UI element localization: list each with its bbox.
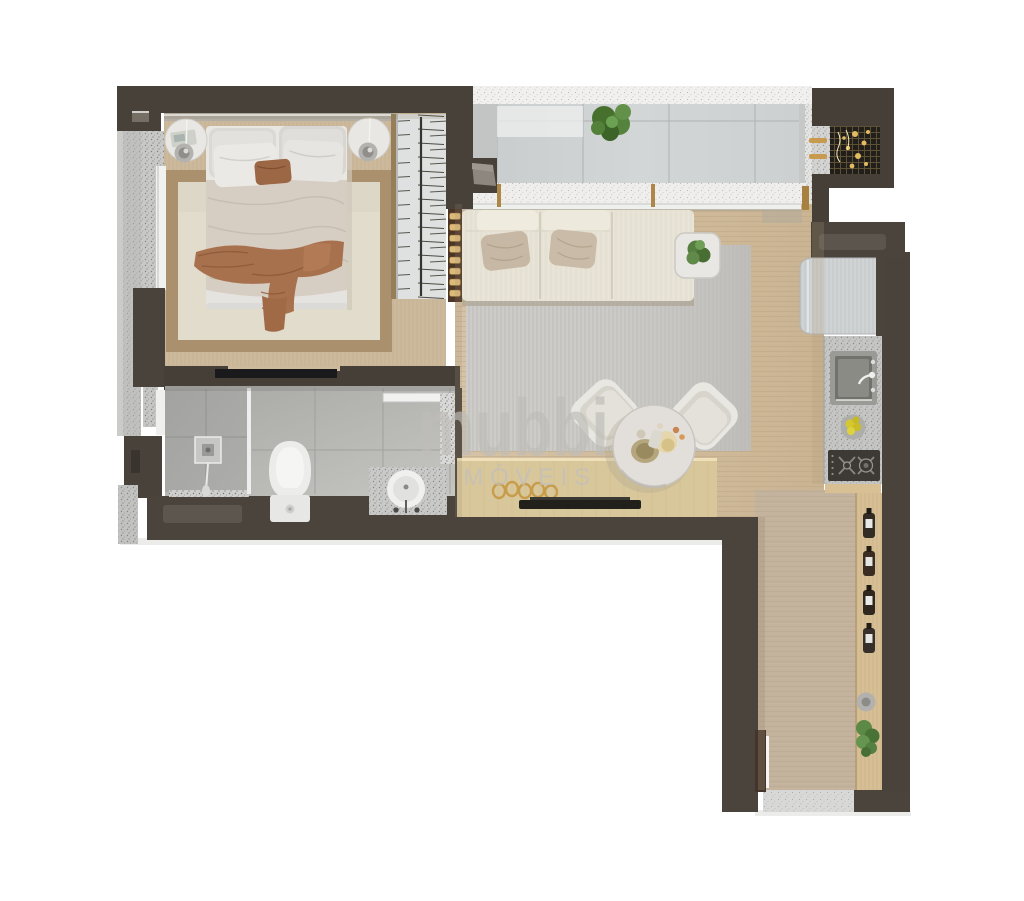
svg-text:mubbi: mubbi	[418, 383, 609, 473]
